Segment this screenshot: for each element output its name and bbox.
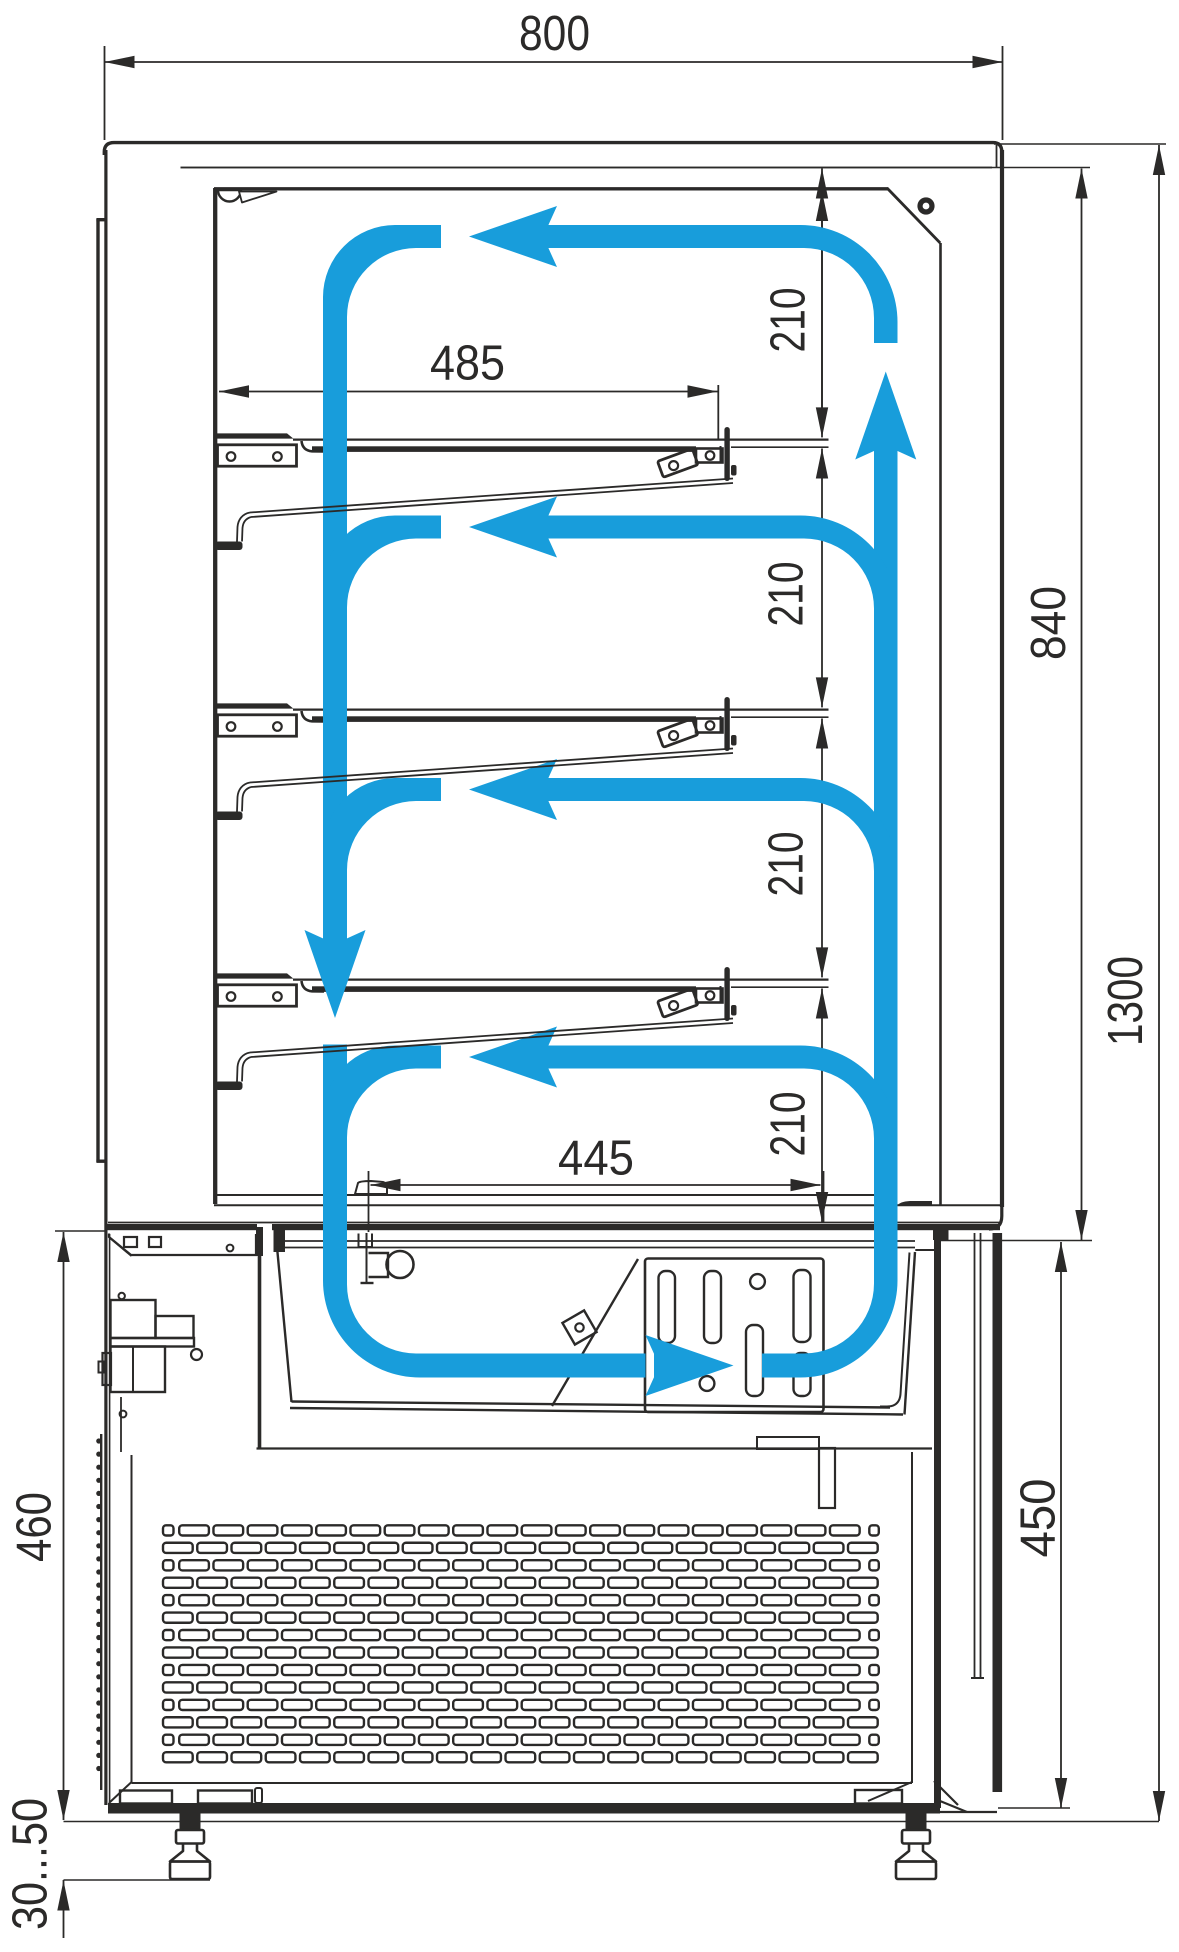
svg-text:800: 800 [519,7,590,61]
svg-text:210: 210 [760,832,814,897]
svg-text:450: 450 [1012,1479,1066,1558]
svg-text:1300: 1300 [1099,956,1153,1046]
svg-text:445: 445 [558,1132,634,1186]
svg-text:210: 210 [762,1092,816,1157]
svg-text:210: 210 [760,562,814,627]
svg-text:460: 460 [8,1492,62,1562]
svg-text:30...50: 30...50 [4,1798,58,1930]
svg-text:485: 485 [430,337,505,391]
svg-text:840: 840 [1022,586,1076,660]
svg-text:210: 210 [762,288,816,353]
